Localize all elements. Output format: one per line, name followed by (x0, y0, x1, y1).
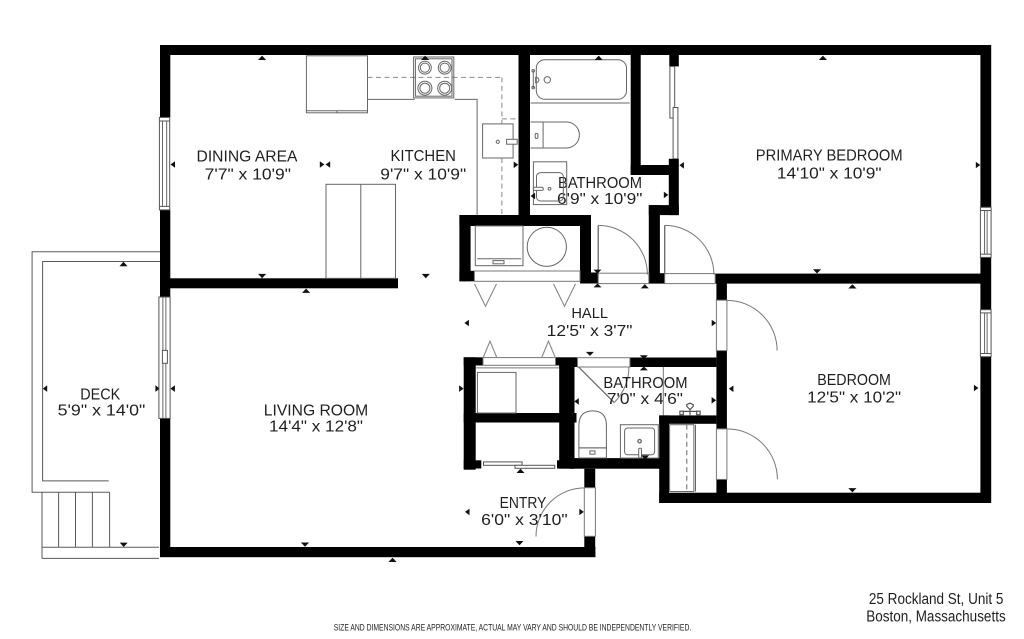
svg-text:14'10" x 10'9": 14'10" x 10'9" (777, 166, 882, 183)
svg-text:6'0" x 3'10": 6'0" x 3'10" (481, 512, 568, 529)
svg-text:14'4" x 12'8": 14'4" x 12'8" (269, 419, 363, 436)
svg-text:BEDROOM: BEDROOM (817, 372, 891, 389)
svg-text:7'7" x 10'9": 7'7" x 10'9" (205, 167, 291, 184)
svg-text:SIZE AND DIMENSIONS ARE APPROX: SIZE AND DIMENSIONS ARE APPROXIMATE, ACT… (334, 623, 692, 633)
svg-text:5'9" x 14'0": 5'9" x 14'0" (58, 402, 146, 419)
svg-text:BATHROOM: BATHROOM (603, 375, 687, 392)
svg-text:12'5" x 3'7": 12'5" x 3'7" (547, 323, 633, 340)
svg-text:ENTRY: ENTRY (500, 495, 547, 512)
svg-text:6'9" x 10'9": 6'9" x 10'9" (557, 191, 642, 208)
svg-text:DECK: DECK (80, 386, 120, 403)
svg-text:DINING AREA: DINING AREA (197, 149, 298, 166)
svg-text:BATHROOM: BATHROOM (558, 175, 642, 192)
svg-text:PRIMARY BEDROOM: PRIMARY BEDROOM (756, 148, 903, 165)
svg-text:9'7" x 10'9": 9'7" x 10'9" (380, 166, 466, 183)
svg-text:7'0" x 4'6": 7'0" x 4'6" (607, 391, 683, 408)
svg-text:25 Rockland St, Unit 5: 25 Rockland St, Unit 5 (869, 591, 1004, 608)
svg-text:KITCHEN: KITCHEN (391, 148, 456, 165)
svg-text:Boston, Massachusetts: Boston, Massachusetts (866, 608, 1006, 625)
svg-text:LIVING ROOM: LIVING ROOM (264, 402, 368, 419)
svg-text:HALL: HALL (571, 305, 608, 322)
svg-text:12'5" x 10'2": 12'5" x 10'2" (807, 389, 901, 406)
